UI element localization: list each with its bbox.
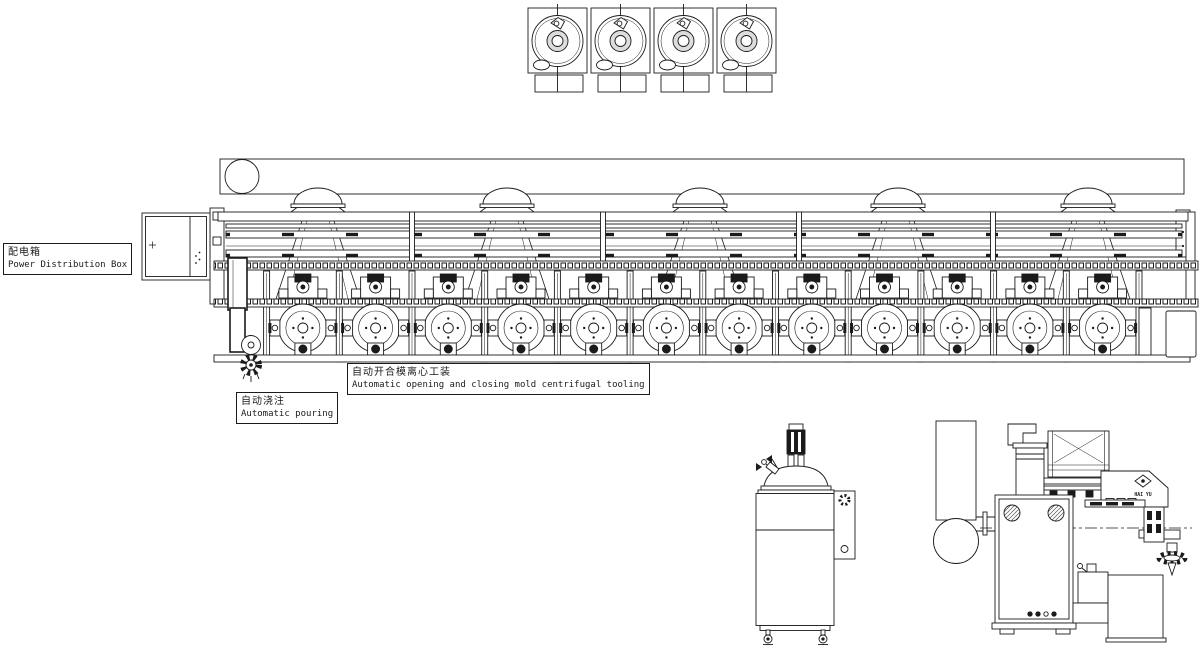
pouring-unit [228, 258, 261, 382]
label-en: Power Distribution Box [8, 259, 127, 271]
technical-drawing-canvas: HAI YU [0, 0, 1200, 646]
pouring-furnace [756, 424, 855, 645]
takeout-machine: HAI YU [980, 424, 1192, 642]
tank-body [756, 494, 834, 626]
vent-icon [1004, 505, 1020, 521]
exhaust-duct-vertical [934, 421, 997, 564]
label-automatic-pouring: 自动浇注 Automatic pouring [236, 392, 338, 424]
label-zh: 自动浇注 [241, 395, 333, 408]
conveyor-chain-lower [214, 299, 1198, 307]
label-en: Automatic opening and closing mold centr… [352, 379, 645, 391]
vent-icon [1048, 505, 1064, 521]
right-end-unit [1139, 308, 1196, 357]
duct-end-circle [225, 160, 259, 194]
conveyor-chain-upper [214, 261, 1198, 270]
top-view-drive-units [528, 4, 776, 92]
label-zh: 自动开合模离心工装 [352, 366, 645, 379]
label-zh: 配电箱 [8, 246, 127, 259]
base-rail [214, 355, 1190, 362]
brand-text: HAI YU [1134, 492, 1151, 498]
power-cabinet [142, 213, 210, 280]
side-box [1108, 575, 1163, 638]
label-centrifugal-tooling: 自动开合模离心工装 Automatic opening and closing … [347, 363, 650, 395]
label-power-distribution-box: 配电箱 Power Distribution Box [3, 243, 132, 275]
label-en: Automatic pouring [241, 408, 333, 420]
duct-elbow-circle [934, 519, 979, 564]
drawing-svg: HAI YU [0, 0, 1200, 646]
